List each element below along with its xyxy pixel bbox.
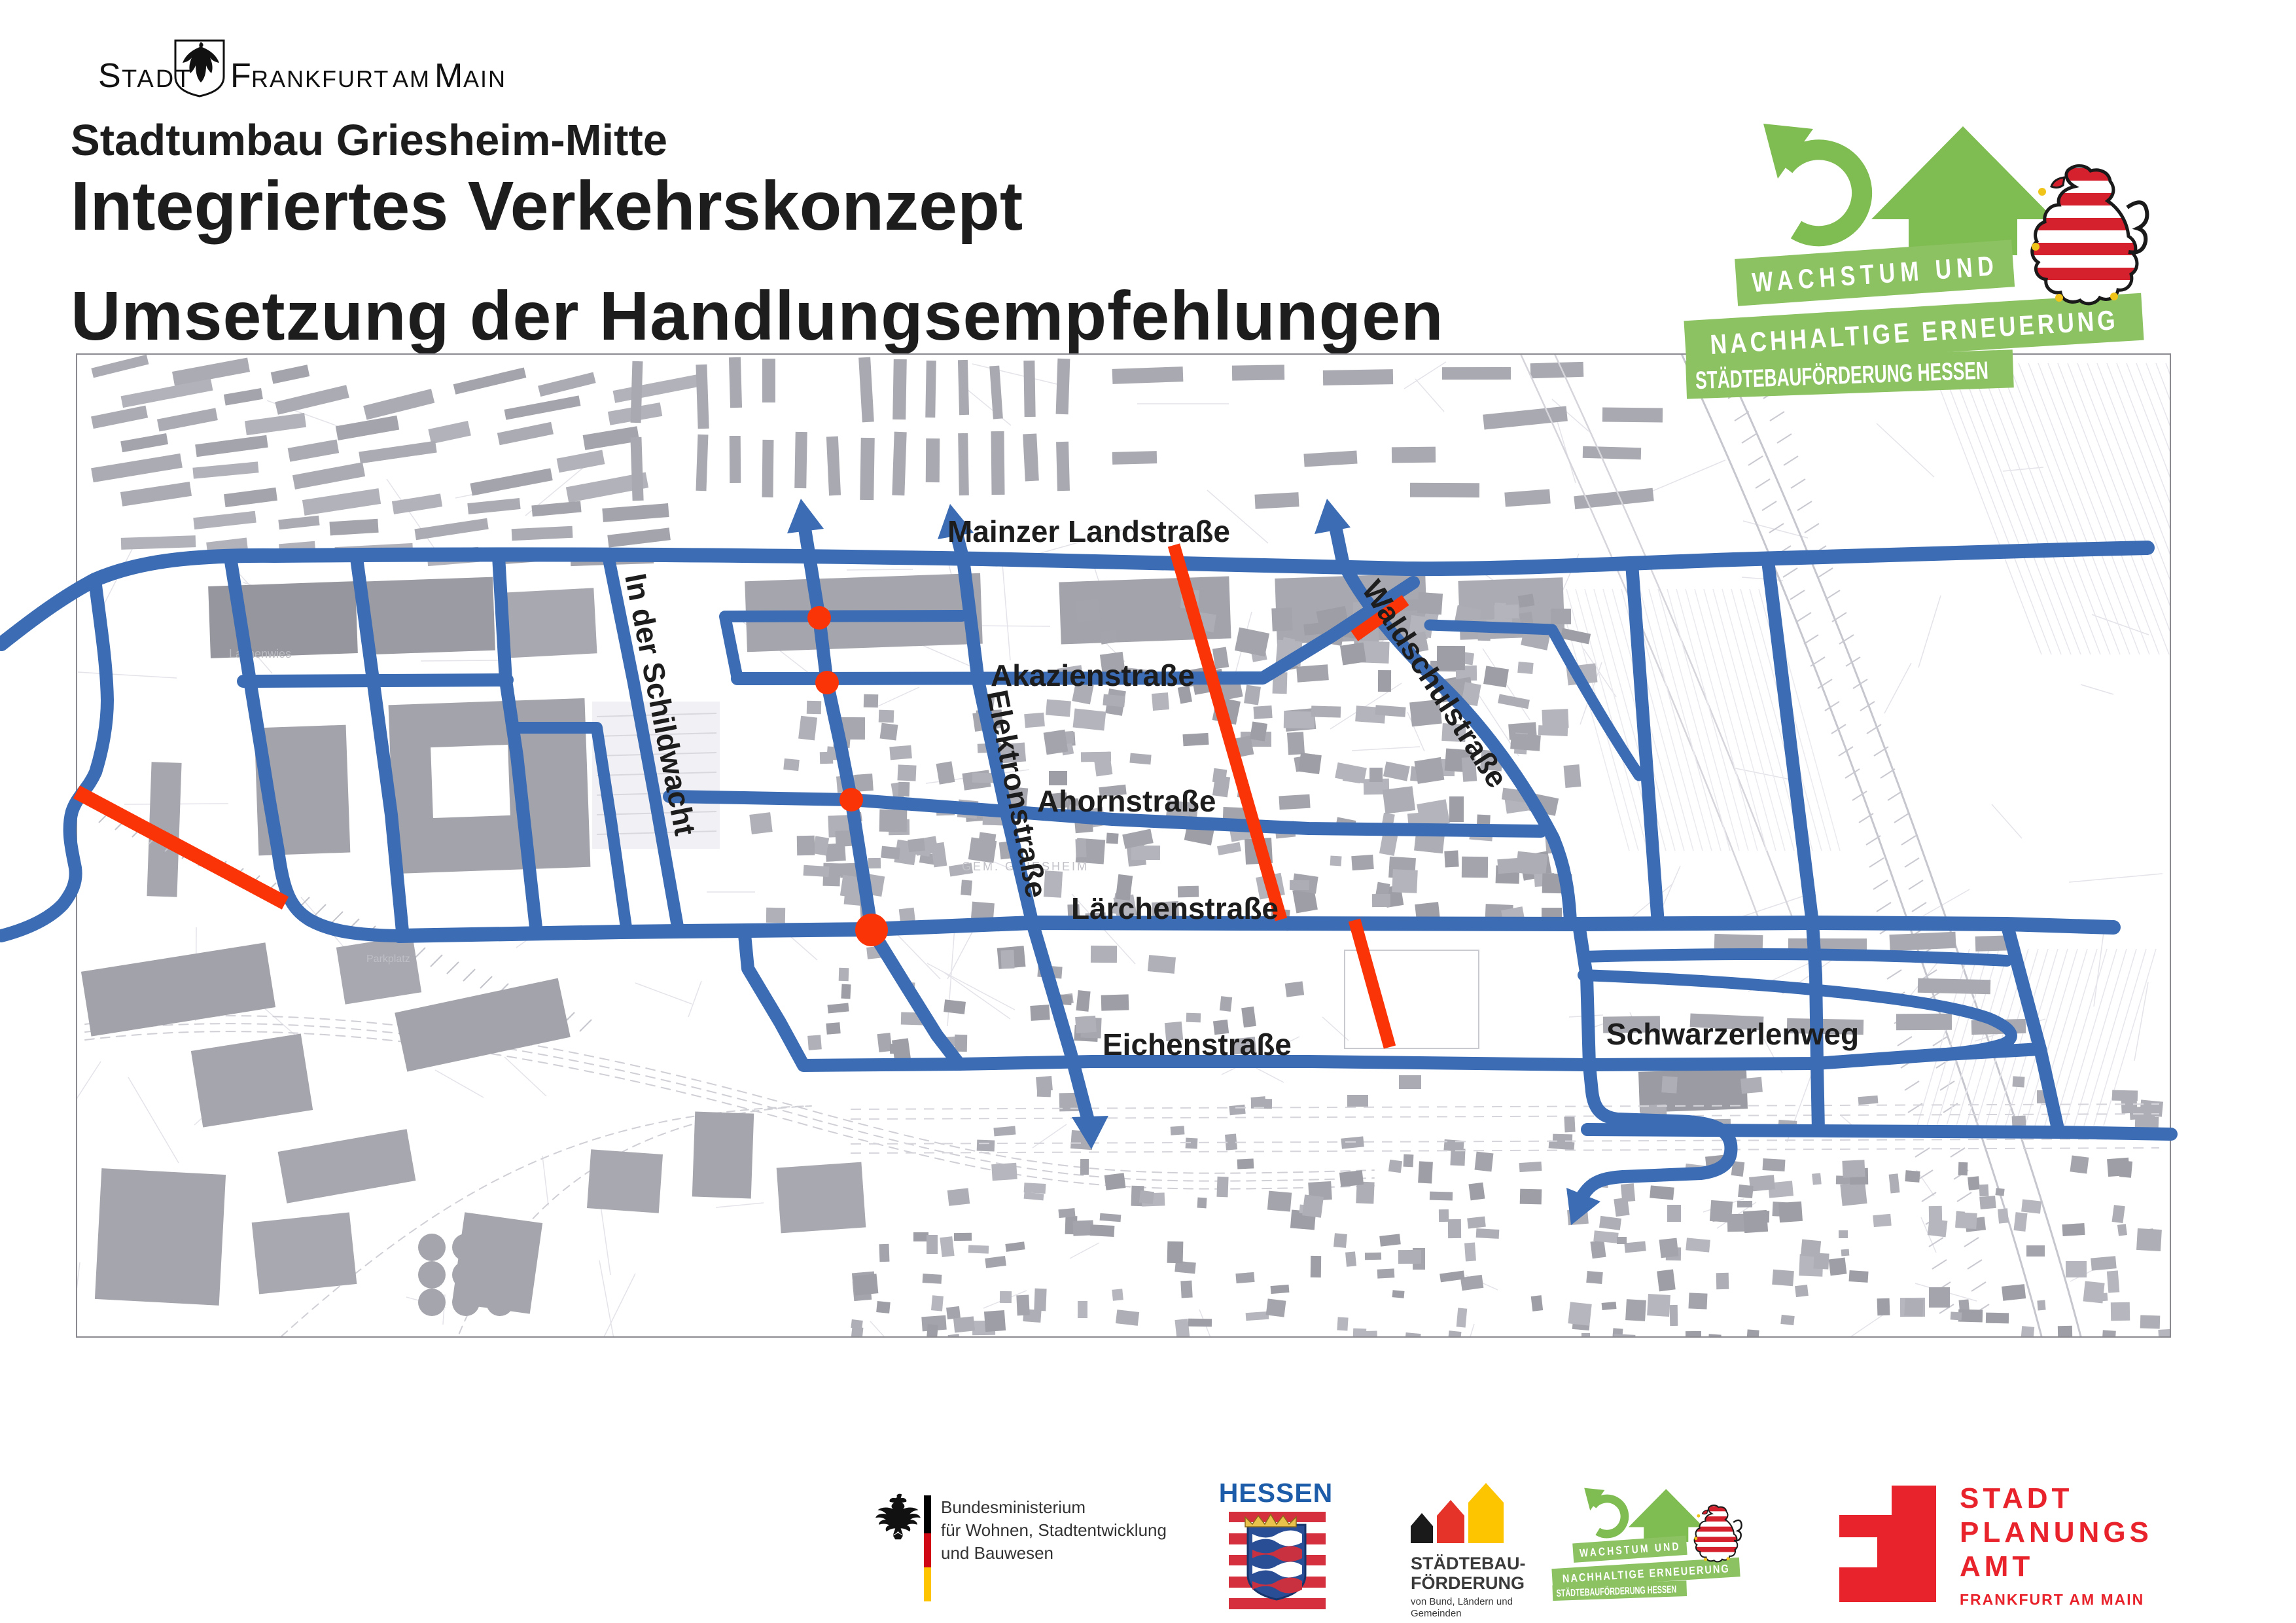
svg-text:und Bauwesen: und Bauwesen (941, 1543, 1053, 1563)
svg-text:M: M (434, 57, 463, 95)
svg-text:PLANUNGS: PLANUNGS (1960, 1516, 2153, 1548)
svg-text:von Bund, Ländern und: von Bund, Ländern und (1411, 1596, 1513, 1607)
svg-text:F: F (230, 57, 251, 95)
svg-text:Integriertes Verkehrskonzept: Integriertes Verkehrskonzept (71, 168, 1023, 245)
svg-text:Eichenstraße: Eichenstraße (1103, 1027, 1292, 1061)
svg-text:Ahornstraße: Ahornstraße (1037, 784, 1216, 818)
svg-text:Akazienstraße: Akazienstraße (991, 658, 1195, 692)
svg-text:Mainzer Landstraße: Mainzer Landstraße (947, 514, 1230, 548)
svg-text:FÖRDERUNG: FÖRDERUNG (1411, 1573, 1525, 1593)
svg-text:für Wohnen, Stadtentwicklung: für Wohnen, Stadtentwicklung (941, 1520, 1167, 1540)
svg-text:AM: AM (393, 65, 431, 92)
svg-text:Bundesministerium: Bundesministerium (941, 1497, 1086, 1517)
svg-text:AMT: AMT (1960, 1550, 2034, 1582)
svg-text:HESSEN: HESSEN (1219, 1478, 1333, 1508)
svg-text:Schwarzerlenweg: Schwarzerlenweg (1606, 1017, 1859, 1051)
svg-text:FRANKFURT AM MAIN: FRANKFURT AM MAIN (1960, 1591, 2144, 1608)
svg-text:Umsetzung der Handlungsempfehl: Umsetzung der Handlungsempfehlungen (71, 277, 1444, 355)
svg-text:STÄDTEBAU-: STÄDTEBAU- (1411, 1554, 1526, 1573)
svg-text:AIN: AIN (463, 65, 506, 92)
svg-text:Stadtumbau Griesheim-Mitte: Stadtumbau Griesheim-Mitte (71, 116, 667, 165)
svg-text:RANKFURT: RANKFURT (251, 65, 389, 92)
svg-text:Lärchenstraße: Lärchenstraße (1071, 891, 1279, 925)
svg-text:S: S (98, 57, 121, 95)
svg-text:Parkplatz: Parkplatz (366, 954, 410, 965)
svg-text:Gemeinden: Gemeinden (1411, 1608, 1462, 1619)
svg-text:STADT: STADT (1960, 1482, 2073, 1514)
